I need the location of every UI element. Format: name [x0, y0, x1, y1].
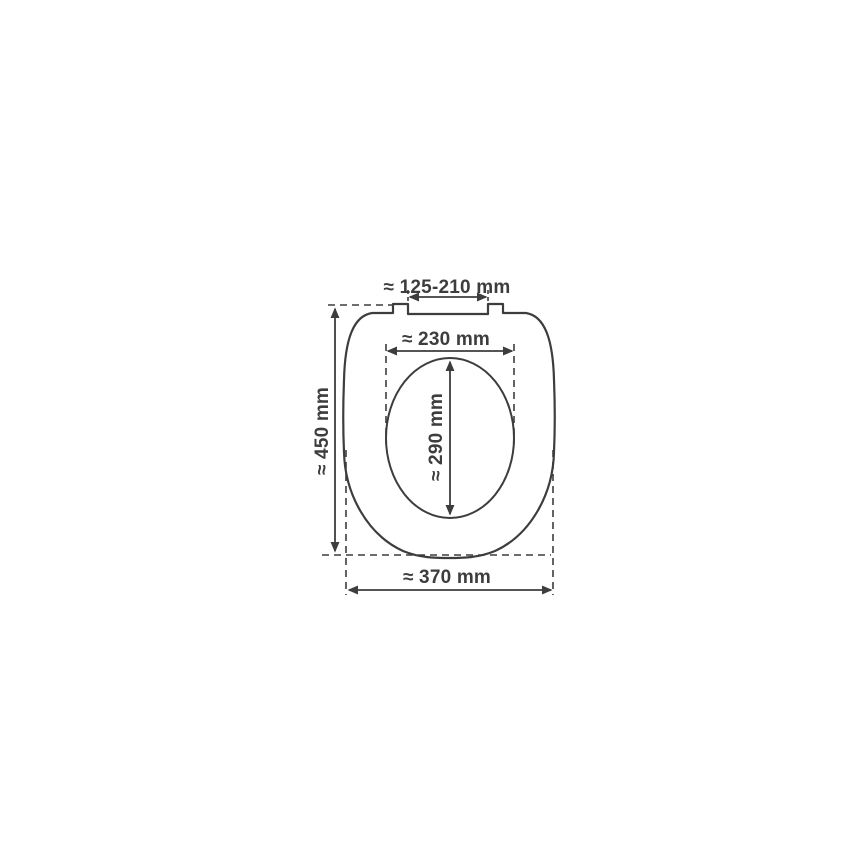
inner-width-label: ≈ 230 mm: [402, 329, 490, 350]
dimension-diagram: ≈ 125-210 mm ≈ 230 mm ≈ 290 mm ≈ 450 mm …: [0, 0, 868, 868]
hinge-distance-label: ≈ 125-210 mm: [384, 277, 511, 298]
inner-length-label: ≈ 290 mm: [426, 393, 447, 481]
toilet-seat-diagram-canvas: ≈ 125-210 mm ≈ 230 mm ≈ 290 mm ≈ 450 mm …: [0, 0, 868, 868]
dim-inner-length: ≈ 290 mm: [426, 362, 450, 514]
overall-width-label: ≈ 370 mm: [403, 567, 491, 588]
dim-hinge-distance: ≈ 125-210 mm: [384, 277, 511, 304]
overall-length-label: ≈ 450 mm: [312, 387, 333, 475]
